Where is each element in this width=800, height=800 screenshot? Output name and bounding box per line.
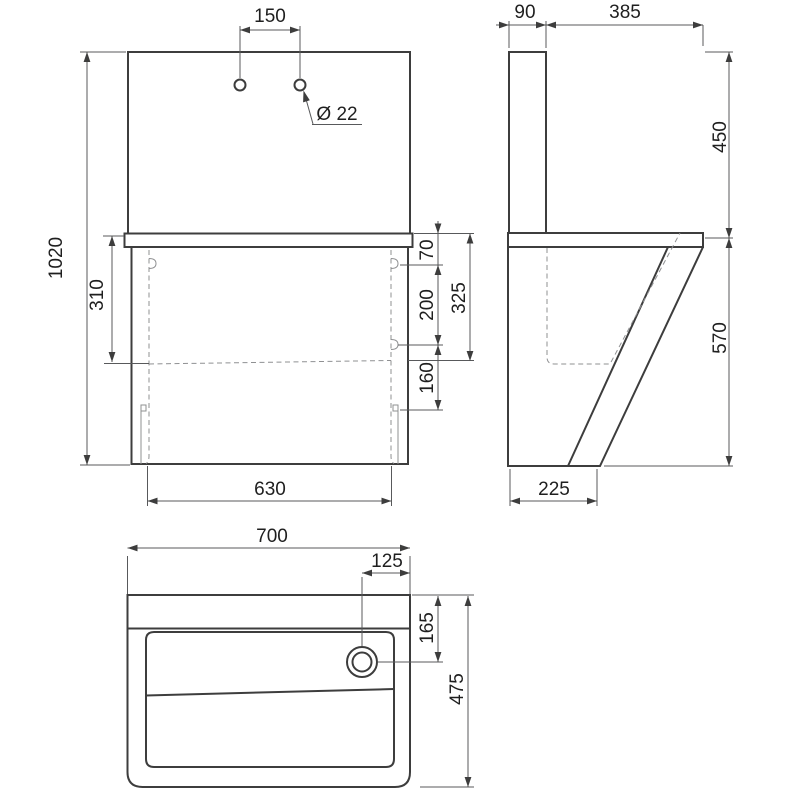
front-rim — [125, 234, 413, 248]
plan-view: 700 125 165 475 — [128, 526, 475, 787]
side-shelf — [508, 233, 703, 247]
dim-label-450: 450 — [710, 121, 731, 153]
front-view: 150 Ø 22 1020 310 — [46, 6, 474, 506]
fixing-hook-top-right — [391, 259, 398, 269]
dim-label-225: 225 — [538, 479, 570, 500]
front-view-geometry — [125, 52, 413, 464]
dim-label-570: 570 — [710, 322, 731, 354]
dim-label-475: 475 — [447, 673, 468, 705]
technical-drawing-canvas: 150 Ø 22 1020 310 — [0, 0, 800, 800]
dim-label-90: 90 — [514, 2, 535, 23]
front-hidden-waterline — [149, 361, 391, 365]
fixing-hook-bottom-right — [393, 405, 398, 464]
side-splashback — [509, 52, 546, 233]
side-view: 90 385 450 570 225 — [496, 2, 733, 506]
dim-label-310: 310 — [87, 279, 108, 311]
dim-tap-hole-diameter: Ø 22 — [303, 91, 362, 126]
tap-hole-left — [235, 80, 246, 91]
dim-overall-height: 1020 — [46, 52, 130, 465]
dim-label-dia22: Ø 22 — [316, 104, 357, 125]
dim-label-70: 70 — [417, 239, 438, 260]
front-hidden-right — [391, 250, 394, 464]
dim-tap-hole-spacing: 150 — [240, 6, 300, 78]
dim-label-150: 150 — [254, 6, 286, 27]
dim-label-700: 700 — [256, 526, 288, 547]
dim-label-630: 630 — [254, 479, 286, 500]
dim-label-385: 385 — [609, 2, 641, 23]
front-body — [132, 247, 409, 464]
dim-label-125: 125 — [371, 551, 403, 572]
dim-right-chain: 70 200 160 — [398, 221, 474, 410]
plan-inner-basin — [146, 632, 394, 767]
dim-splashback-thickness-and-depth: 90 385 — [496, 2, 703, 48]
front-hidden-left — [146, 250, 149, 464]
side-body — [508, 247, 703, 466]
side-hidden-basin — [547, 233, 680, 364]
dim-bottom-depth: 225 — [510, 469, 597, 506]
front-splashback-panel — [128, 52, 410, 234]
dim-label-165: 165 — [417, 612, 438, 644]
dim-heights: 450 570 — [604, 52, 733, 466]
plan-fold-line — [146, 689, 394, 696]
drain-inner — [353, 653, 372, 672]
side-view-geometry — [508, 52, 703, 466]
dim-basin-depth: 310 — [87, 236, 149, 364]
fixing-hook-bottom-left — [141, 405, 146, 464]
dim-label-200: 200 — [417, 289, 438, 321]
fixing-hook-mid-right — [391, 340, 398, 350]
dim-fixing-width: 630 — [148, 466, 392, 506]
dim-label-160: 160 — [417, 362, 438, 394]
tap-hole-right — [295, 80, 306, 91]
plan-view-geometry — [128, 595, 411, 787]
dim-label-325: 325 — [449, 282, 470, 314]
dim-overall-width: 700 — [128, 526, 411, 594]
fixing-hook-top-left — [149, 259, 156, 269]
plan-outer-outline — [128, 595, 411, 787]
dim-label-1020: 1020 — [46, 237, 67, 279]
